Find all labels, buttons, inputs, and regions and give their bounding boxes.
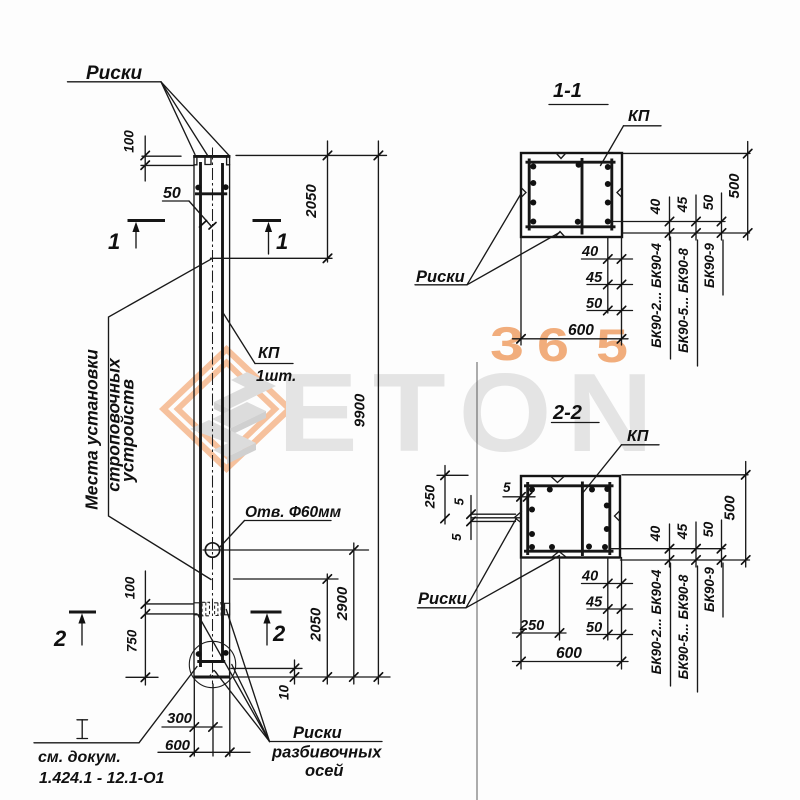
svg-text:БК90-9: БК90-9 [702, 243, 717, 288]
svg-text:Риски: Риски [293, 724, 342, 742]
svg-text:50: 50 [586, 620, 602, 636]
svg-text:9900: 9900 [352, 393, 369, 427]
svg-text:1-1: 1-1 [553, 80, 582, 102]
svg-text:500: 500 [726, 173, 743, 199]
svg-text:Риски: Риски [86, 63, 142, 84]
svg-text:1: 1 [276, 229, 288, 254]
svg-text:40: 40 [581, 244, 598, 260]
svg-text:500: 500 [722, 495, 739, 521]
svg-text:БК90-2... БК90-4: БК90-2... БК90-4 [649, 569, 664, 674]
svg-text:100: 100 [123, 576, 138, 599]
svg-text:50: 50 [700, 522, 716, 538]
svg-text:50: 50 [700, 195, 716, 211]
svg-text:40: 40 [581, 569, 598, 585]
svg-text:600: 600 [165, 737, 191, 754]
svg-text:600: 600 [556, 645, 582, 662]
svg-text:2900: 2900 [334, 586, 351, 621]
svg-text:45: 45 [585, 270, 603, 286]
svg-text:5: 5 [596, 319, 628, 372]
svg-text:Места установки: Места установки [82, 349, 102, 510]
svg-text:45: 45 [585, 595, 603, 611]
svg-text:2: 2 [272, 621, 286, 646]
svg-text:100: 100 [122, 130, 137, 153]
svg-text:600: 600 [568, 322, 594, 339]
svg-text:5: 5 [449, 533, 464, 541]
svg-text:Риски: Риски [416, 268, 465, 286]
svg-text:КП: КП [628, 108, 650, 125]
svg-text:750: 750 [125, 629, 140, 652]
svg-text:6: 6 [537, 318, 569, 371]
svg-text:см. докум.: см. докум. [38, 749, 121, 766]
svg-text:10: 10 [277, 685, 292, 701]
svg-text:250: 250 [422, 485, 438, 510]
svg-text:2: 2 [53, 626, 67, 651]
svg-text:1шт.: 1шт. [256, 368, 296, 385]
svg-text:5: 5 [503, 480, 511, 495]
svg-text:1.424.1 - 12.1-О1: 1.424.1 - 12.1-О1 [39, 770, 165, 787]
svg-text:КП: КП [627, 428, 649, 445]
svg-text:2050: 2050 [303, 184, 320, 219]
svg-text:устройств: устройств [118, 379, 138, 483]
svg-text:Отв. Ф60мм: Отв. Ф60мм [245, 504, 342, 521]
svg-text:КП: КП [258, 345, 280, 362]
svg-text:45: 45 [674, 197, 690, 214]
svg-text:300: 300 [167, 710, 193, 727]
svg-text:5: 5 [452, 497, 467, 505]
svg-text:250: 250 [519, 618, 544, 634]
svg-text:40: 40 [647, 526, 663, 543]
svg-text:БК90-5... БК90-8: БК90-5... БК90-8 [676, 248, 691, 353]
svg-text:осей: осей [305, 762, 344, 780]
svg-text:БК90-9: БК90-9 [702, 567, 717, 612]
svg-text:40: 40 [647, 199, 663, 216]
svg-text:2-2: 2-2 [552, 402, 582, 424]
svg-text:3: 3 [490, 317, 524, 370]
svg-text:50: 50 [586, 296, 602, 312]
svg-text:БК90-2... БК90-4: БК90-2... БК90-4 [649, 243, 664, 348]
svg-text:2050: 2050 [308, 607, 325, 642]
svg-text:БК90-5... БК90-8: БК90-5... БК90-8 [676, 574, 691, 679]
svg-text:Риски: Риски [418, 590, 467, 608]
svg-text:разбивочных: разбивочных [271, 744, 382, 762]
svg-text:45: 45 [674, 524, 690, 541]
svg-text:50: 50 [163, 185, 181, 202]
svg-text:1: 1 [108, 229, 120, 254]
